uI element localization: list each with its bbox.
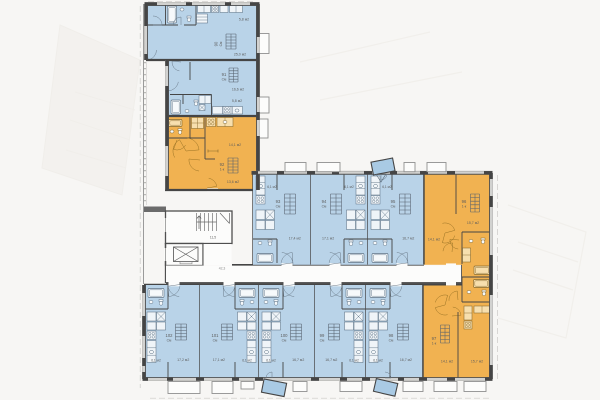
- svg-text:94: 94: [322, 199, 327, 204]
- svg-text:См: См: [322, 205, 327, 209]
- svg-text:См: См: [282, 339, 287, 343]
- svg-text:15,7 м2: 15,7 м2: [471, 360, 483, 364]
- svg-text:5,8 м2: 5,8 м2: [232, 99, 242, 103]
- svg-text:5,8 м2: 5,8 м2: [239, 18, 249, 22]
- svg-text:17,4 м2: 17,4 м2: [289, 237, 301, 241]
- svg-text:6,1 м2: 6,1 м2: [266, 359, 276, 363]
- svg-text:100: 100: [281, 333, 289, 338]
- svg-text:16,6 м2: 16,6 м2: [232, 88, 244, 92]
- svg-text:16,7 м2: 16,7 м2: [402, 237, 414, 241]
- svg-text:17,1 м2: 17,1 м2: [322, 237, 334, 241]
- svg-text:14,1 м2: 14,1 м2: [229, 143, 241, 147]
- svg-text:6,1 м2: 6,1 м2: [382, 185, 392, 189]
- svg-text:96: 96: [462, 199, 467, 204]
- svg-text:16,7 м2: 16,7 м2: [325, 358, 337, 362]
- svg-text:См: См: [276, 205, 281, 209]
- svg-text:95: 95: [391, 199, 396, 204]
- svg-text:1-к: 1-к: [220, 168, 225, 172]
- svg-text:См: См: [320, 339, 325, 343]
- svg-text:6,1 м2: 6,1 м2: [373, 359, 383, 363]
- svg-text:См: См: [219, 41, 223, 46]
- svg-text:См: См: [167, 339, 172, 343]
- svg-text:25,0 м2: 25,0 м2: [234, 53, 246, 57]
- svg-text:См: См: [213, 339, 218, 343]
- svg-text:97: 97: [432, 336, 437, 341]
- svg-text:92: 92: [220, 162, 225, 167]
- svg-text:42,3: 42,3: [219, 267, 226, 271]
- svg-text:93: 93: [276, 199, 281, 204]
- svg-text:102: 102: [166, 333, 174, 338]
- svg-text:17,2 м2: 17,2 м2: [177, 358, 189, 362]
- svg-text:14,1 м2: 14,1 м2: [441, 360, 453, 364]
- svg-text:16,7 м2: 16,7 м2: [292, 358, 304, 362]
- svg-text:11,5: 11,5: [210, 236, 216, 240]
- svg-text:16,7 м2: 16,7 м2: [400, 358, 412, 362]
- svg-text:13,6 м2: 13,6 м2: [227, 180, 239, 184]
- svg-text:15,7 м2: 15,7 м2: [467, 221, 479, 225]
- svg-text:90: 90: [214, 41, 219, 46]
- svg-text:1-к: 1-к: [462, 205, 467, 209]
- svg-text:91: 91: [222, 72, 227, 77]
- svg-text:6,1 м2: 6,1 м2: [344, 185, 354, 189]
- svg-text:101: 101: [212, 333, 220, 338]
- svg-text:6,1 м2: 6,1 м2: [151, 359, 161, 363]
- svg-text:См: См: [389, 339, 394, 343]
- svg-text:См: См: [222, 78, 227, 82]
- svg-text:6,1 м2: 6,1 м2: [242, 359, 252, 363]
- svg-text:17,1 м2: 17,1 м2: [213, 358, 225, 362]
- svg-text:6,1 м2: 6,1 м2: [267, 185, 277, 189]
- svg-text:1-к: 1-к: [432, 342, 437, 346]
- svg-text:См: См: [391, 205, 396, 209]
- svg-text:6,1 м2: 6,1 м2: [349, 359, 359, 363]
- svg-text:14,1 м2: 14,1 м2: [428, 238, 440, 242]
- svg-text:98: 98: [389, 333, 394, 338]
- svg-text:99: 99: [320, 333, 325, 338]
